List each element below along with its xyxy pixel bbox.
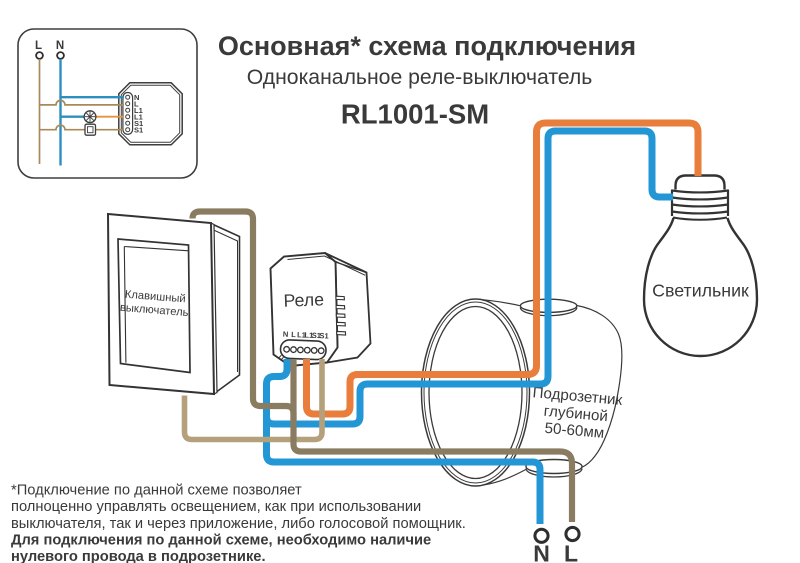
svg-text:Светильник: Светильник xyxy=(652,281,749,301)
svg-text:L: L xyxy=(291,330,296,339)
svg-text:S1: S1 xyxy=(134,126,143,135)
svg-text:Одноканальное реле-выключатель: Одноканальное реле-выключатель xyxy=(247,66,593,89)
svg-text:N: N xyxy=(283,330,289,339)
svg-text:L: L xyxy=(564,541,578,563)
svg-text:Реле: Реле xyxy=(283,289,324,310)
svg-text:*Подключение по данной схеме п: *Подключение по данной схеме позволяет xyxy=(11,482,302,498)
svg-text:Основная* схема подключения: Основная* схема подключения xyxy=(218,31,636,61)
svg-text:полноценно управлять освещение: полноценно управлять освещением, как при… xyxy=(11,499,421,515)
svg-text:RL1001-SM: RL1001-SM xyxy=(341,99,489,130)
svg-text:Для подключения по данной схем: Для подключения по данной схеме, необход… xyxy=(11,533,431,549)
svg-text:N: N xyxy=(533,541,550,563)
svg-text:S1: S1 xyxy=(319,331,329,340)
svg-text:N: N xyxy=(56,40,64,52)
svg-text:выключателя, так и через прило: выключателя, так и через приложение, либ… xyxy=(11,516,466,532)
svg-text:нулевого провода в подрозетник: нулевого провода в подрозетнике. xyxy=(11,549,266,563)
svg-text:L: L xyxy=(35,40,42,52)
